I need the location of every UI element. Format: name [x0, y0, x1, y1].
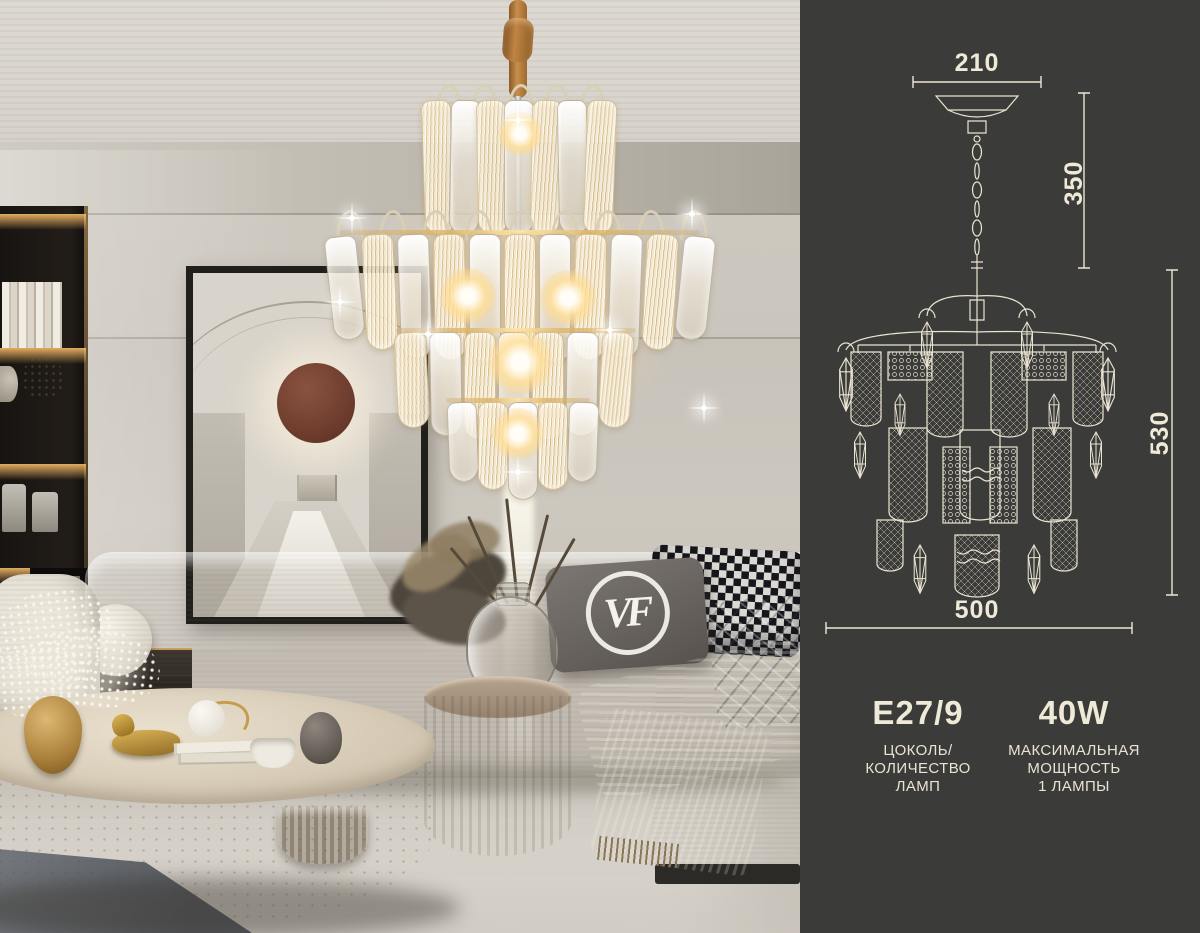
sparkle-highlight [424, 330, 432, 338]
sparkle-highlight [348, 214, 356, 222]
pillow-monogram-text: VF [602, 587, 653, 638]
pillow-monogrammed: VF [544, 557, 709, 674]
chandelier-crystal [394, 331, 431, 429]
sparkle-highlight [606, 326, 614, 334]
sparkle-highlight [514, 468, 522, 476]
room-photo: VF [0, 0, 800, 933]
sparkle-highlight [336, 298, 344, 306]
chandelier-crystal [598, 331, 635, 429]
shelf-light [0, 464, 86, 480]
spec-caption-line: 1 ЛАМПЫ [974, 778, 1174, 796]
spec-power-value: 40W [974, 694, 1174, 732]
wood-drum-table [424, 696, 572, 856]
sparkle-highlight [514, 116, 522, 124]
chandelier-crystal [447, 402, 480, 483]
spec-panel: 210 350 530 500 E27/9 ЦОКОЛЬ/ КОЛИЧЕСТВО… [800, 0, 1200, 933]
dim-label-body-height: 530 [1147, 393, 1173, 473]
dim-label-chain-height: 350 [1061, 143, 1087, 223]
shelf-light [0, 214, 86, 230]
decor-sphere-gray [0, 366, 18, 402]
chandelier-crystal [567, 402, 600, 483]
chandelier-crystal [538, 402, 568, 490]
lamp-glow [492, 408, 544, 460]
books-stack [2, 282, 62, 348]
decor-sphere-perforated [22, 356, 64, 400]
lamp-glow [440, 268, 496, 324]
spec-power: 40W МАКСИМАЛЬНАЯ МОЩНОСТЬ 1 ЛАМПЫ [974, 694, 1174, 796]
spec-caption-line: МОЩНОСТЬ [974, 760, 1174, 778]
lamp-glow [540, 270, 596, 326]
spec-power-caption: МАКСИМАЛЬНАЯ МОЩНОСТЬ 1 ЛАМПЫ [974, 742, 1174, 796]
decor-pedestal [32, 492, 58, 532]
sparkle-highlight [700, 404, 708, 412]
lamp-glow [488, 330, 552, 394]
chandelier-line-drawing [800, 0, 1200, 680]
spec-caption-line: МАКСИМАЛЬНАЯ [974, 742, 1174, 760]
dim-label-bottom-width: 500 [937, 597, 1017, 623]
decor-pedestal [2, 484, 26, 532]
chandelier-cord-knot [502, 17, 535, 63]
sparkle-highlight [688, 210, 696, 218]
dim-label-top-width: 210 [937, 50, 1017, 76]
chandelier-crystal [361, 233, 399, 351]
product-card: VF [0, 0, 1200, 933]
coffee-table-book [178, 752, 258, 764]
dark-vase [300, 712, 342, 764]
chandelier-crystal [641, 233, 679, 351]
decor-sphere-small [188, 700, 225, 737]
monogram-ring: VF [583, 568, 673, 658]
